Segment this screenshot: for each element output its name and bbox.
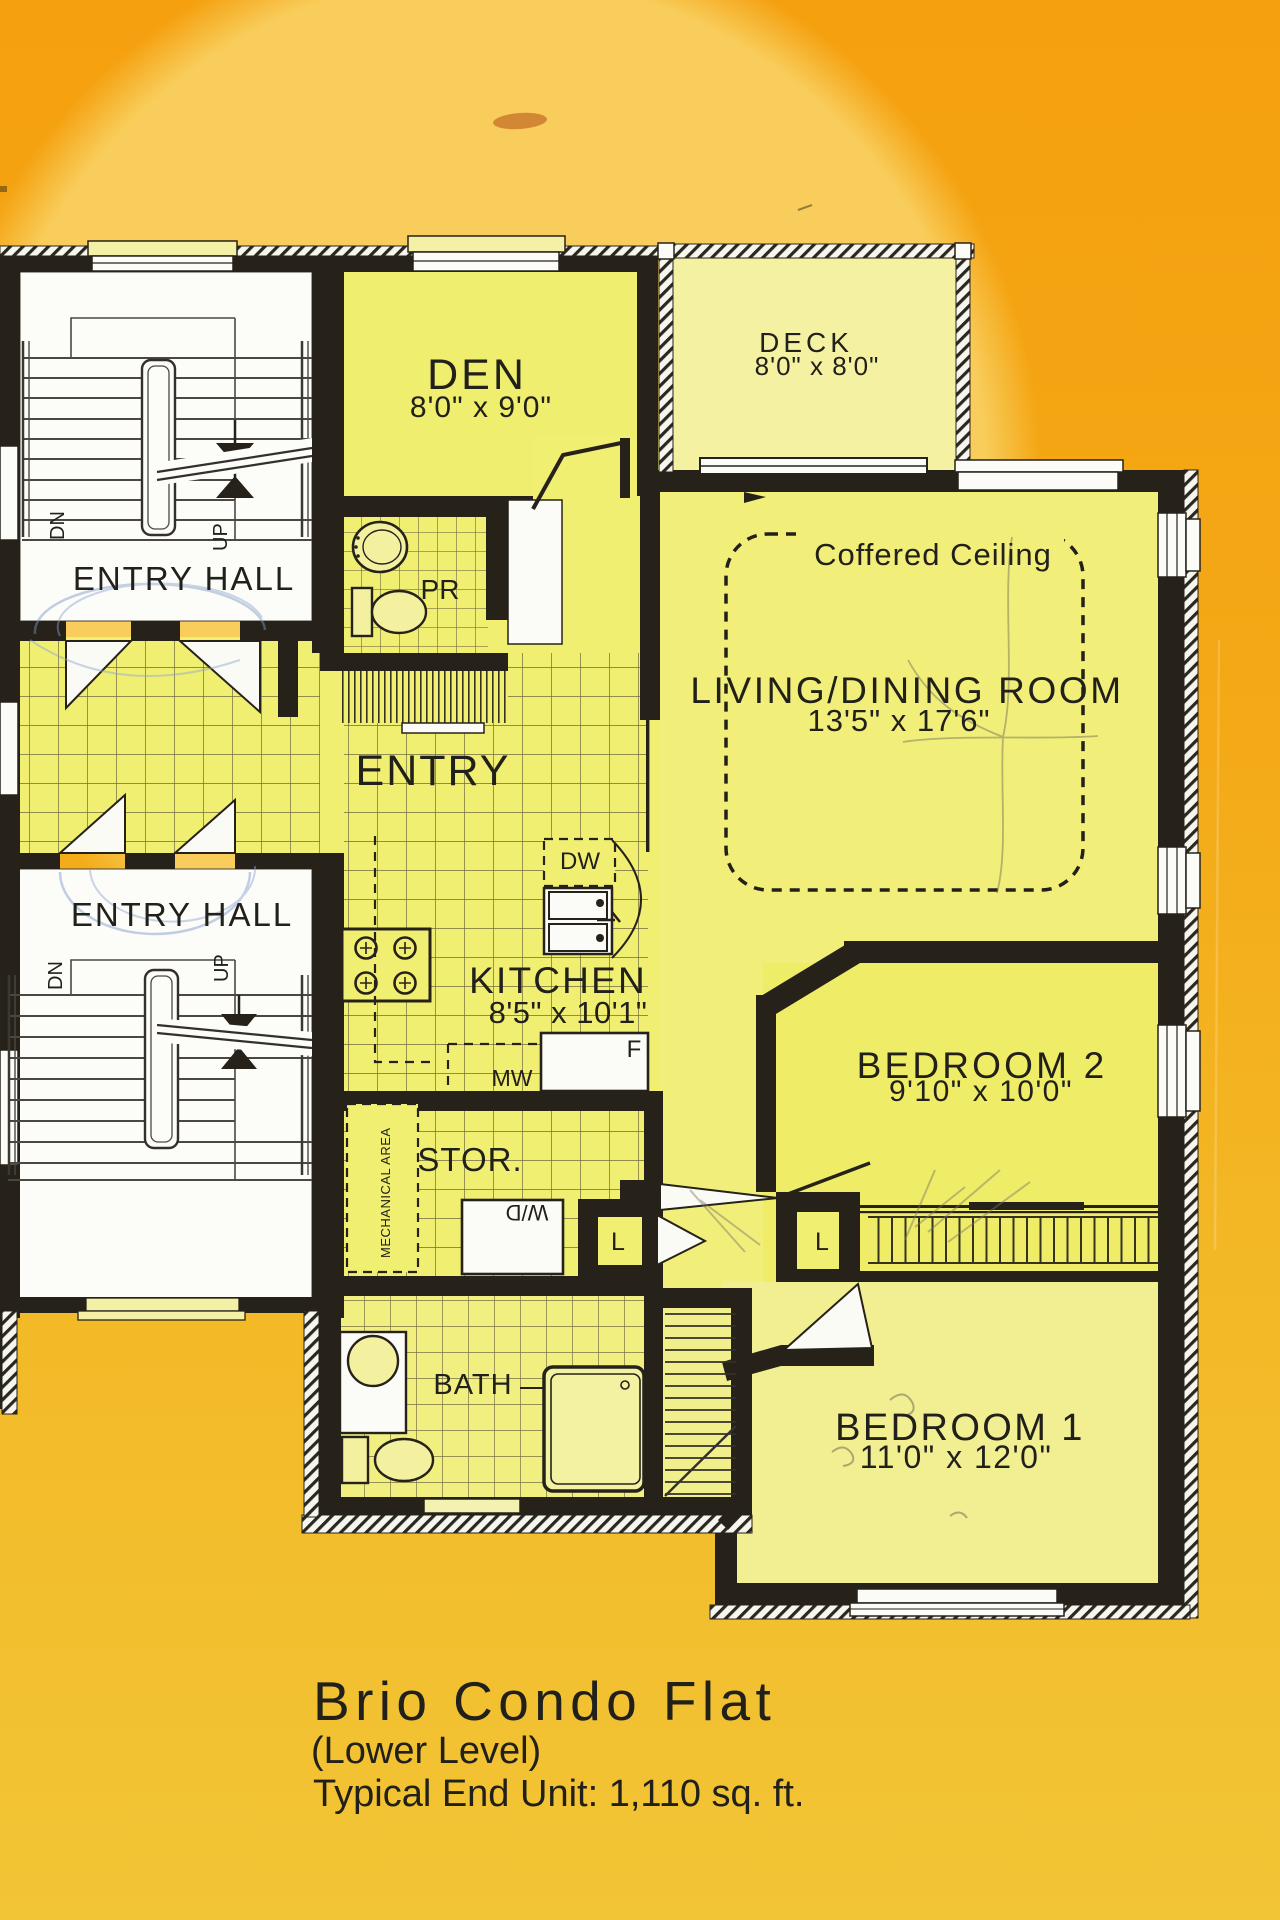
svg-text:Coffered Ceiling: Coffered Ceiling [814,537,1052,572]
svg-text:DN: DN [45,961,67,990]
svg-text:UP: UP [210,523,232,551]
svg-text:Typical End Unit: 1,110 sq. ft: Typical End Unit: 1,110 sq. ft. [313,1773,804,1815]
svg-text:L: L [815,1228,829,1256]
svg-text:MECHANICAL AREA: MECHANICAL AREA [378,1127,393,1258]
svg-text:ENTRY HALL: ENTRY HALL [73,560,295,597]
svg-text:F: F [627,1036,642,1063]
svg-text:11'0" x 12'0": 11'0" x 12'0" [860,1439,1053,1475]
svg-text:8'0" x 8'0": 8'0" x 8'0" [755,351,880,381]
svg-text:L: L [611,1228,625,1256]
svg-text:MW: MW [492,1065,533,1091]
svg-text:8'5" x 10'1": 8'5" x 10'1" [489,995,648,1030]
svg-text:DW: DW [560,848,600,875]
svg-text:PR: PR [421,574,460,605]
svg-text:DN: DN [47,511,69,540]
svg-text:13'5" x 17'6": 13'5" x 17'6" [807,703,990,738]
svg-text:8'0" x 9'0": 8'0" x 9'0" [410,391,552,424]
svg-text:Brio Condo Flat: Brio Condo Flat [313,1670,776,1732]
svg-text:ENTRY: ENTRY [356,747,511,795]
svg-text:9'10" x 10'0": 9'10" x 10'0" [889,1075,1073,1108]
svg-text:W/D: W/D [506,1200,549,1225]
svg-text:(Lower Level): (Lower Level) [311,1730,541,1772]
svg-text:ENTRY HALL: ENTRY HALL [71,896,293,933]
svg-text:UP: UP [211,954,233,982]
svg-text:STOR.: STOR. [417,1141,522,1178]
svg-text:BATH: BATH [433,1369,512,1401]
